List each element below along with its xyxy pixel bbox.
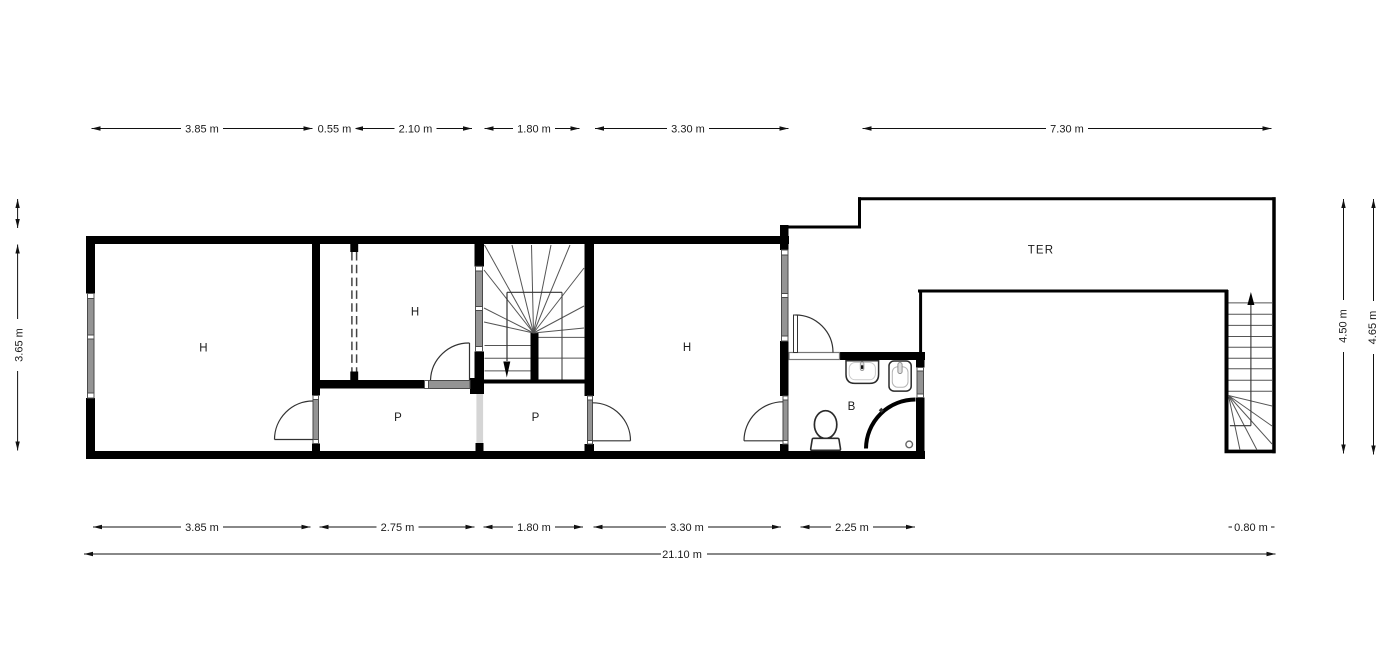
svg-text:H: H — [199, 343, 207, 355]
svg-text:4.50 m: 4.50 m — [1337, 309, 1349, 343]
svg-text:B: B — [848, 401, 856, 413]
svg-text:P: P — [394, 412, 402, 424]
svg-text:H: H — [411, 307, 419, 319]
svg-text:0.80 m: 0.80 m — [1234, 522, 1268, 534]
svg-text:7.30 m: 7.30 m — [1050, 124, 1084, 136]
svg-text:P: P — [532, 412, 540, 424]
svg-text:4.65 m: 4.65 m — [1367, 311, 1379, 345]
svg-text:1.80 m: 1.80 m — [517, 522, 551, 534]
svg-text:3.85 m: 3.85 m — [185, 124, 219, 136]
svg-text:2.25 m: 2.25 m — [835, 522, 869, 534]
svg-text:2.10 m: 2.10 m — [399, 124, 433, 136]
svg-text:3.85 m: 3.85 m — [185, 522, 219, 534]
svg-text:3.65 m: 3.65 m — [13, 328, 25, 362]
svg-text:21.10 m: 21.10 m — [662, 549, 702, 561]
svg-text:3.30 m: 3.30 m — [671, 124, 705, 136]
svg-text:1.80 m: 1.80 m — [517, 124, 551, 136]
svg-text:2.75 m: 2.75 m — [381, 522, 415, 534]
svg-text:0.55 m: 0.55 m — [318, 124, 352, 136]
svg-text:H: H — [683, 342, 691, 354]
svg-text:TER: TER — [1028, 245, 1055, 257]
svg-text:3.30 m: 3.30 m — [670, 522, 704, 534]
